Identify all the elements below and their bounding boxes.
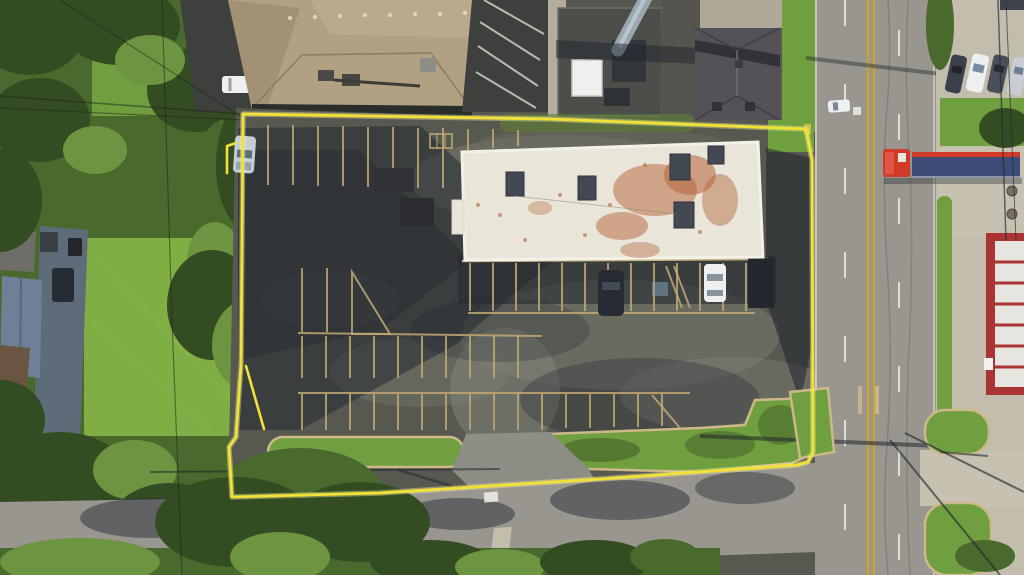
tree-canopy [63,126,127,174]
rust-stain [702,174,738,226]
truck-hood [885,152,894,174]
road-tree-shadow [550,480,690,520]
vent [463,11,467,15]
dumpster [400,198,434,226]
car-on-road [828,99,851,113]
vent [388,13,392,17]
rooftop-unit [420,58,436,72]
vent [413,12,417,16]
aerial-photo-canvas [0,0,1024,575]
dark-structure [748,258,774,308]
red-semi-truck [883,149,1022,184]
dumpster [374,168,414,192]
white-equipment-box [572,60,602,96]
rust-speck [558,193,562,197]
hvac-unit [670,154,690,180]
road-tree-shadow [695,472,795,504]
chimney [735,60,743,68]
rust-speck [643,163,647,167]
parked-suv-dark [598,270,624,316]
hvac-unit [708,146,724,164]
tree-canopy [630,539,700,575]
rooftop-unit [318,70,334,81]
parked-boat-trailer [52,268,74,302]
car-rear-window [707,290,723,296]
car-windshield [707,274,723,281]
vent [363,13,367,17]
rust-speck [698,230,702,234]
vent [288,16,292,20]
cab-roof-cap [898,153,906,162]
hvac-unit [674,202,694,228]
hvac-unit [506,172,524,196]
hvac-unit [578,176,596,200]
parked-vehicle [68,238,82,256]
equipment-unit [604,88,630,106]
truck-shadow [884,178,1022,184]
parked-car-edge [1000,0,1024,10]
car-body [828,99,851,113]
house-front-walk [700,0,782,28]
rust-speck [523,238,527,242]
roof-notch [452,200,464,234]
vent [313,15,317,19]
north-parking-strip [462,0,556,112]
building-sign-box [984,358,993,370]
rust-speck [476,203,480,207]
east-verge-strip [937,196,952,426]
equipment-yard [548,0,816,132]
rust-speck [583,233,587,237]
house-side-lawn [782,0,816,132]
red-canopy-building [984,233,1024,395]
north-buildings [180,0,556,116]
roof-window [712,102,722,111]
roof-hip-light [310,0,497,38]
utility-cover [1007,186,1017,196]
car-windshield [833,102,839,110]
road-object [853,107,861,115]
main-road-surface [815,0,937,575]
rust-speck [498,213,502,217]
suv-windshield [602,282,620,290]
roof-window [745,102,755,111]
parked-car-white [704,264,726,302]
pavement-paint-mark [652,282,668,296]
rust-stain [620,242,660,258]
aerial-photo [0,0,1024,575]
rust-stain [528,201,552,215]
rust-stain [596,212,648,240]
driveway-apron-south [920,450,1024,506]
road-paint-mark [484,491,499,502]
vent [338,14,342,18]
parked-vehicle [40,232,58,252]
vent [438,12,442,16]
